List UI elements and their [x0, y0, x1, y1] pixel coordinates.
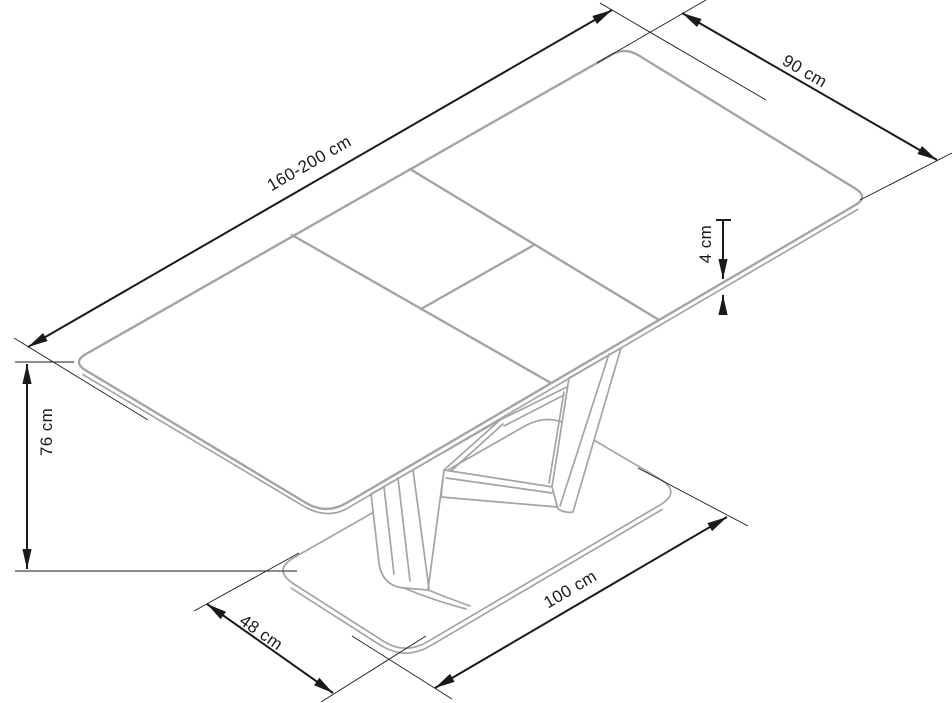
base-width-extension-line-end [321, 636, 426, 702]
width-extension-line-start [597, 0, 706, 63]
base-width-extension-line-start [194, 553, 299, 611]
dimension-drawing-page: 160-200 cm 90 cm 4 cm 76 cm 48 cm 100 cm [0, 0, 952, 703]
extension-leaf-center-divider [421, 245, 534, 309]
base-plate [283, 419, 671, 653]
width-extension-line-end [860, 153, 952, 200]
width-dimension-label: 90 cm [779, 51, 830, 92]
length-dimension-line [28, 10, 612, 347]
dimension-top-thickness: 4 cm [696, 220, 731, 312]
base-width-dimension-label: 48 cm [236, 611, 286, 654]
height-dimension-label: 76 cm [37, 408, 56, 456]
dimension-height: 76 cm [15, 362, 297, 571]
width-dimension-line [682, 13, 937, 160]
pedestal-window-top-edge [500, 387, 567, 420]
thickness-dimension-label: 4 cm [696, 225, 715, 263]
dimension-width: 90 cm [597, 0, 952, 200]
base-plate-top-face [283, 419, 671, 648]
table-dimension-diagram: 160-200 cm 90 cm 4 cm 76 cm 48 cm 100 cm [0, 0, 952, 703]
length-extension-line-start [14, 338, 148, 420]
base-length-dimension-label: 100 cm [540, 566, 600, 612]
